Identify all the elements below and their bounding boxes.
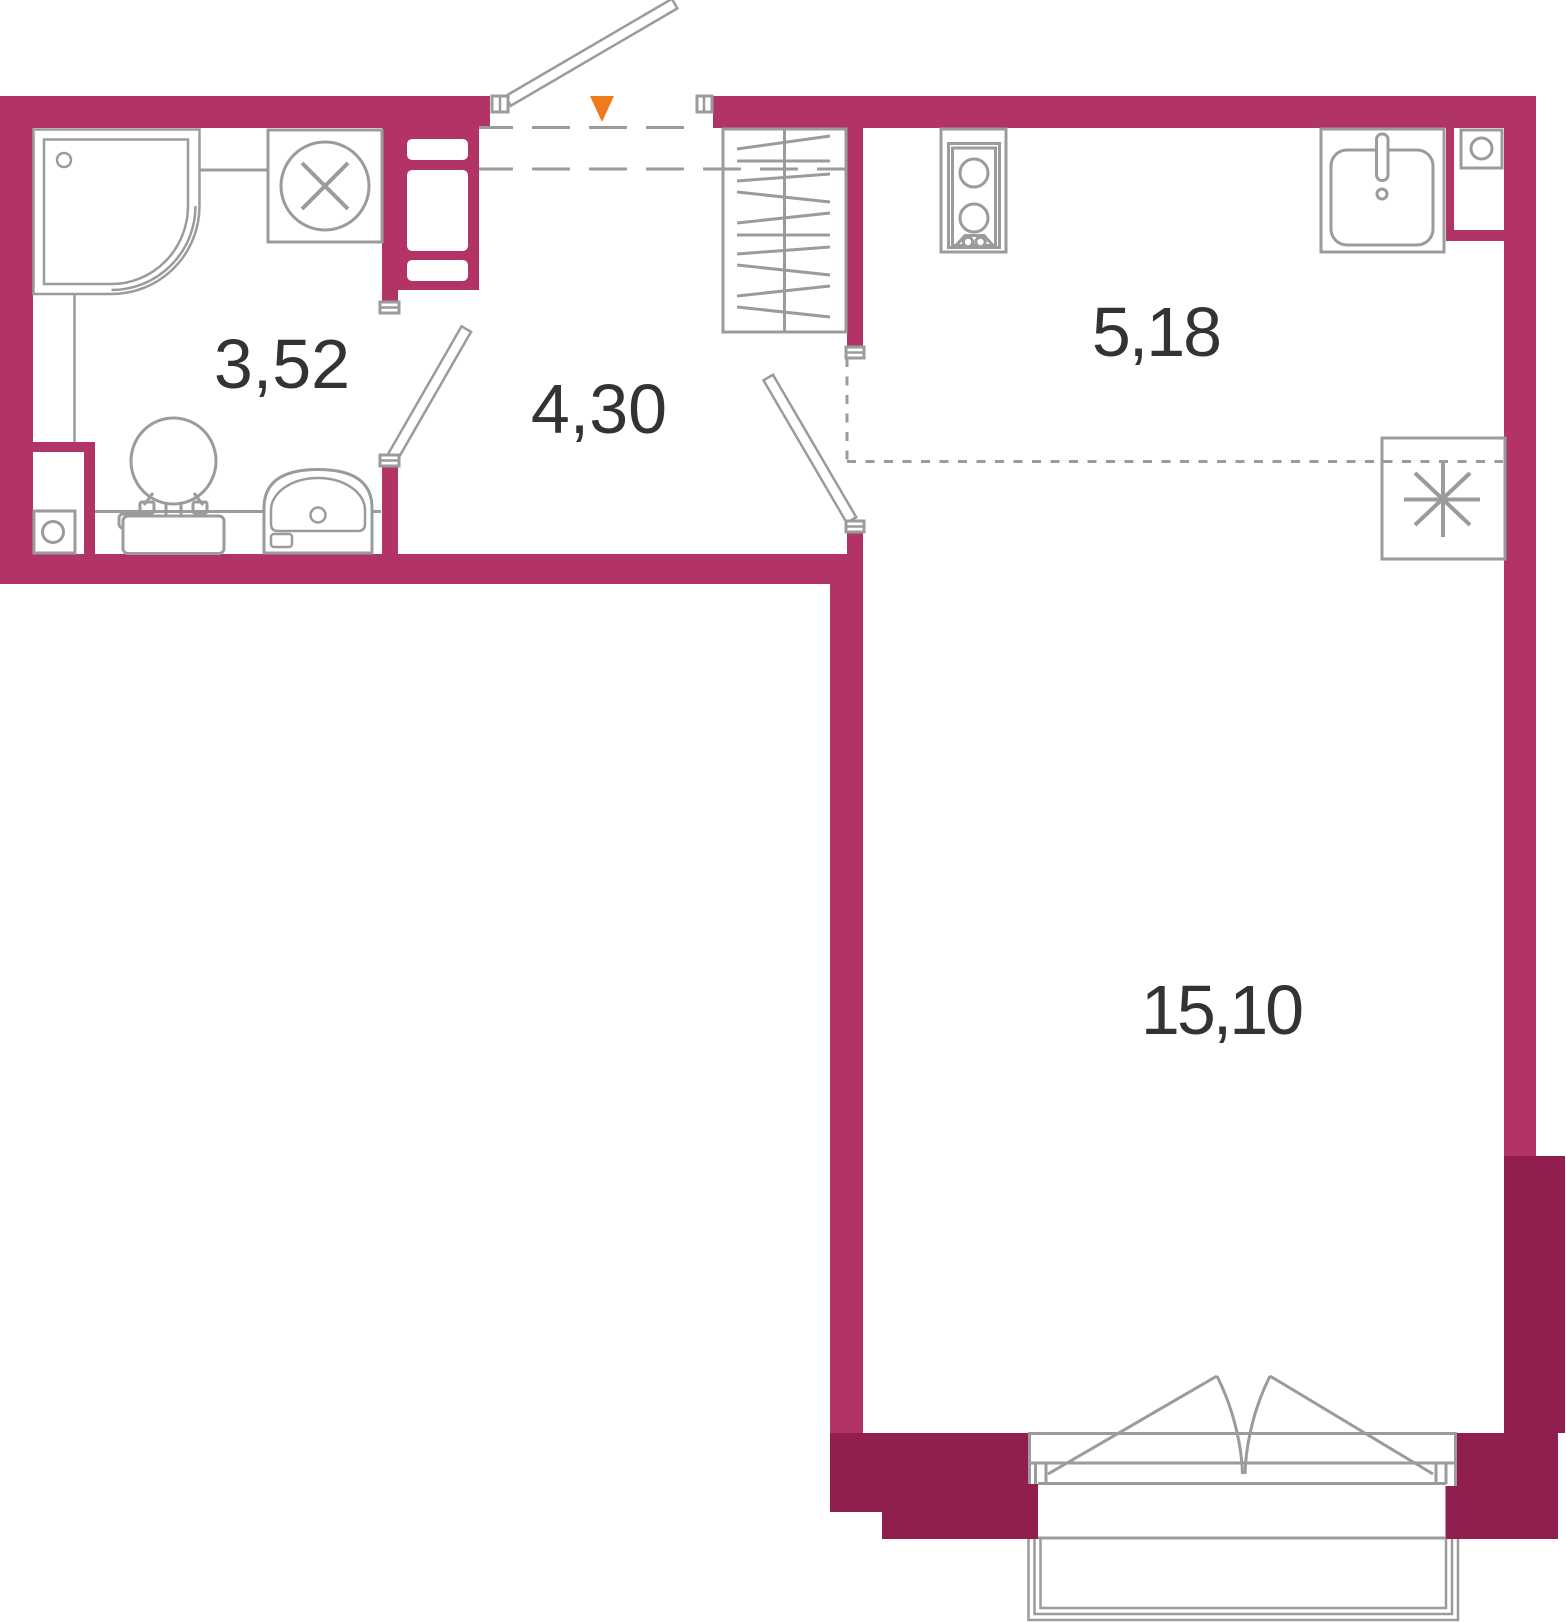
- svg-text:4,30: 4,30: [531, 370, 667, 448]
- svg-text:3,52: 3,52: [214, 325, 350, 403]
- svg-text:15,10: 15,10: [1141, 971, 1302, 1049]
- svg-text:5,18: 5,18: [1092, 293, 1220, 371]
